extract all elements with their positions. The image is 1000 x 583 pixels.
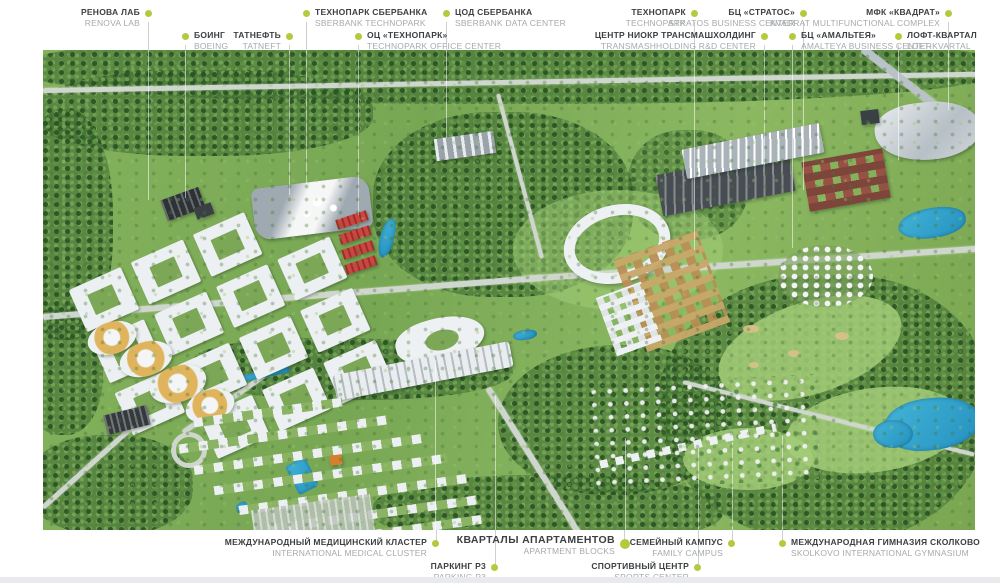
callout-kvadrat: МФК «КВАДРАТ»KVADRAT MULTIFUNCTIONAL COM… <box>770 7 952 28</box>
masterplan-render <box>43 50 975 530</box>
orange-accent-building <box>329 454 342 466</box>
marker-dot-icon <box>491 564 498 571</box>
leader-line <box>792 50 793 248</box>
masterplan-page: РЕНОВА ЛАБRENOVA LAB БОИНГBOEING ТАТНЕФТ… <box>0 0 1000 583</box>
callout-transmashholding: ЦЕНТР НИОКР ТРАНСМАШХОЛДИНГTRANSMASHHOLD… <box>595 30 768 51</box>
leader-line <box>185 50 186 198</box>
label-en: TECHNOPARK OFFICE CENTER <box>367 41 501 51</box>
leader-line <box>698 448 699 530</box>
leader-line <box>898 50 899 160</box>
label-en: FAMILY CAMPUS <box>630 548 723 558</box>
label-en: BOEING <box>194 41 228 51</box>
callout-sberbank-technopark: ТЕХНОПАРК СБЕРБАНКАSBERBANK TECHNOPARK <box>303 7 427 28</box>
leader-line <box>435 360 436 530</box>
marker-dot-icon <box>895 33 902 40</box>
callout-medical-cluster: МЕЖДУНАРОДНЫЙ МЕДИЦИНСКИЙ КЛАСТЕРINTERNA… <box>225 537 439 558</box>
leader-line <box>446 50 447 138</box>
label-en: TRANSMASHHOLDING R&D CENTER <box>595 41 756 51</box>
campus-block <box>277 236 347 301</box>
campus-block <box>300 288 370 353</box>
golf-lake <box>873 420 913 448</box>
label-ru: ОЦ «ТЕХНОПАРК» <box>367 30 501 40</box>
marker-dot-icon <box>355 33 362 40</box>
amalteya-domes <box>778 245 873 307</box>
callout-apartment-blocks: КВАРТАЛЫ АПАРТАМЕНТОВAPARTMENT BLOCKS <box>457 535 630 556</box>
label-en: APARTMENT BLOCKS <box>457 546 615 556</box>
label-ru: МЕЖДУНАРОДНАЯ ГИМНАЗИЯ СКОЛКОВО <box>791 537 980 547</box>
leader-line <box>782 435 783 530</box>
marker-dot-icon <box>761 33 768 40</box>
leader-line <box>625 438 626 530</box>
leader-line <box>495 395 496 530</box>
marker-dot-icon <box>182 33 189 40</box>
label-en: RENOVA LAB <box>81 18 140 28</box>
leader-line <box>306 50 307 185</box>
callout-boeing: БОИНГBOEING <box>182 30 228 51</box>
sand-bunker <box>749 362 759 368</box>
campus-block <box>215 264 285 329</box>
label-ru: СПОРТИВНЫЙ ЦЕНТР <box>591 561 689 571</box>
sand-bunker <box>743 325 759 333</box>
callout-gymnasium: МЕЖДУНАРОДНАЯ ГИМНАЗИЯ СКОЛКОВОSKOLKOVO … <box>779 537 980 558</box>
callout-tatneft: ТАТНЕФТЬTATNEFT <box>233 30 293 51</box>
station-building <box>860 109 880 125</box>
callout-technopark-office-center: ОЦ «ТЕХНОПАРК»TECHNOPARK OFFICE CENTER <box>355 30 501 51</box>
callout-family-campus: СЕМЕЙНЫЙ КАМПУСFAMILY CAMPUS <box>630 537 735 558</box>
label-ru: БОИНГ <box>194 30 228 40</box>
leader-line <box>289 50 290 195</box>
bottom-edge-bar <box>0 577 1000 583</box>
label-en: SBERBANK TECHNOPARK <box>315 18 427 28</box>
leader-line <box>148 50 149 200</box>
callout-loft-kvartal: ЛОФТ-КВАРТАЛLOFT-KVARTAL <box>895 30 977 51</box>
campus-block <box>130 240 200 305</box>
label-ru: МФК «КВАДРАТ» <box>770 7 940 17</box>
campus-block <box>238 315 308 380</box>
label-ru: ЛОФТ-КВАРТАЛ <box>907 30 977 40</box>
label-ru: МЕЖДУНАРОДНЫЙ МЕДИЦИНСКИЙ КЛАСТЕР <box>225 537 427 547</box>
label-en: LOFT-KVARTAL <box>907 41 977 51</box>
label-en: TATNEFT <box>233 41 281 51</box>
label-ru: ТЕХНОПАРК СБЕРБАНКА <box>315 7 427 17</box>
marker-dot-icon <box>303 10 310 17</box>
leader-line <box>694 50 695 250</box>
leader-line <box>764 50 765 165</box>
sand-bunker <box>835 332 849 340</box>
marker-dot-icon <box>432 540 439 547</box>
marker-dot-icon <box>945 10 952 17</box>
label-en: SKOLKOVO INTERNATIONAL GYMNASIUM <box>791 548 980 558</box>
leader-line <box>948 50 949 110</box>
label-en: SBERBANK DATA CENTER <box>455 18 566 28</box>
label-en: KVADRAT MULTIFUNCTIONAL COMPLEX <box>770 18 940 28</box>
marker-dot-icon <box>443 10 450 17</box>
label-ru: РЕНОВА ЛАБ <box>81 7 140 17</box>
leader-line <box>732 442 733 530</box>
label-ru: СЕМЕЙНЫЙ КАМПУС <box>630 537 723 547</box>
marker-dot-icon <box>286 33 293 40</box>
label-en: INTERNATIONAL MEDICAL CLUSTER <box>225 548 427 558</box>
campus-block <box>192 212 262 277</box>
pond <box>512 328 537 341</box>
marker-dot-icon <box>694 564 701 571</box>
marker-dot-icon <box>789 33 796 40</box>
marker-dot-icon <box>779 540 786 547</box>
leader-line <box>803 50 804 190</box>
sand-bunker <box>788 350 800 357</box>
label-ru: ЦЕНТР НИОКР ТРАНСМАШХОЛДИНГ <box>595 30 756 40</box>
marker-dot-icon <box>145 10 152 17</box>
marker-dot-icon <box>620 539 630 549</box>
label-ru: ПАРКИНГ Р3 <box>431 561 486 571</box>
loft-kvartal-brick-complex <box>801 148 890 211</box>
label-ru: КВАРТАЛЫ АПАРТАМЕНТОВ <box>457 535 615 545</box>
marker-dot-icon <box>728 540 735 547</box>
callout-sberbank-data-center: ЦОД СБЕРБАНКАSBERBANK DATA CENTER <box>443 7 566 28</box>
label-ru: ЦОД СБЕРБАНКА <box>455 7 566 17</box>
label-ru: ТАТНЕФТЬ <box>233 30 281 40</box>
family-campus-village <box>585 374 820 491</box>
kvadrat-complex-building <box>872 96 975 166</box>
callout-renova-lab: РЕНОВА ЛАБRENOVA LAB <box>81 7 152 28</box>
leader-line <box>358 50 359 215</box>
highlighted-red-building <box>344 255 378 274</box>
lake <box>896 203 968 242</box>
campus-block <box>261 367 331 432</box>
